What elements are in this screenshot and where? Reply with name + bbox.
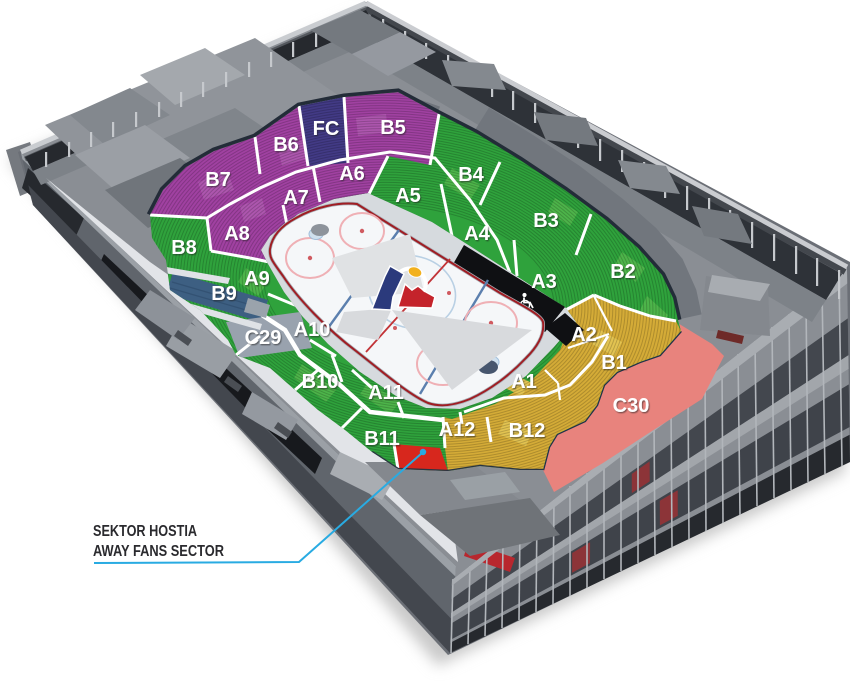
svg-text:B9: B9 <box>211 283 237 305</box>
svg-text:AWAY FANS SECTOR: AWAY FANS SECTOR <box>93 543 224 560</box>
svg-text:B8: B8 <box>171 237 197 259</box>
svg-text:A1: A1 <box>511 371 537 393</box>
svg-text:B1: B1 <box>601 352 627 374</box>
svg-text:A3: A3 <box>531 271 557 293</box>
svg-text:A7: A7 <box>283 187 309 209</box>
svg-text:SEKTOR HOSTIA: SEKTOR HOSTIA <box>93 523 197 540</box>
svg-text:B6: B6 <box>273 134 299 156</box>
svg-text:FC: FC <box>313 118 340 140</box>
svg-text:A12: A12 <box>439 419 476 441</box>
svg-text:A6: A6 <box>339 163 365 185</box>
svg-text:A8: A8 <box>224 223 250 245</box>
svg-text:B5: B5 <box>380 117 406 139</box>
svg-text:B4: B4 <box>458 164 484 186</box>
svg-text:A11: A11 <box>368 382 404 404</box>
svg-text:B2: B2 <box>610 261 636 283</box>
svg-text:C30: C30 <box>613 395 650 417</box>
svg-text:B12: B12 <box>509 420 546 442</box>
svg-text:A9: A9 <box>244 268 270 290</box>
svg-text:A10: A10 <box>294 319 331 341</box>
svg-text:B7: B7 <box>205 169 231 191</box>
svg-text:B3: B3 <box>533 210 559 232</box>
svg-text:B10: B10 <box>302 371 339 393</box>
svg-text:A2: A2 <box>571 324 597 346</box>
svg-text:A4: A4 <box>464 223 490 245</box>
svg-text:A5: A5 <box>395 185 421 207</box>
svg-text:C29: C29 <box>245 327 282 349</box>
svg-text:B11: B11 <box>364 428 400 450</box>
